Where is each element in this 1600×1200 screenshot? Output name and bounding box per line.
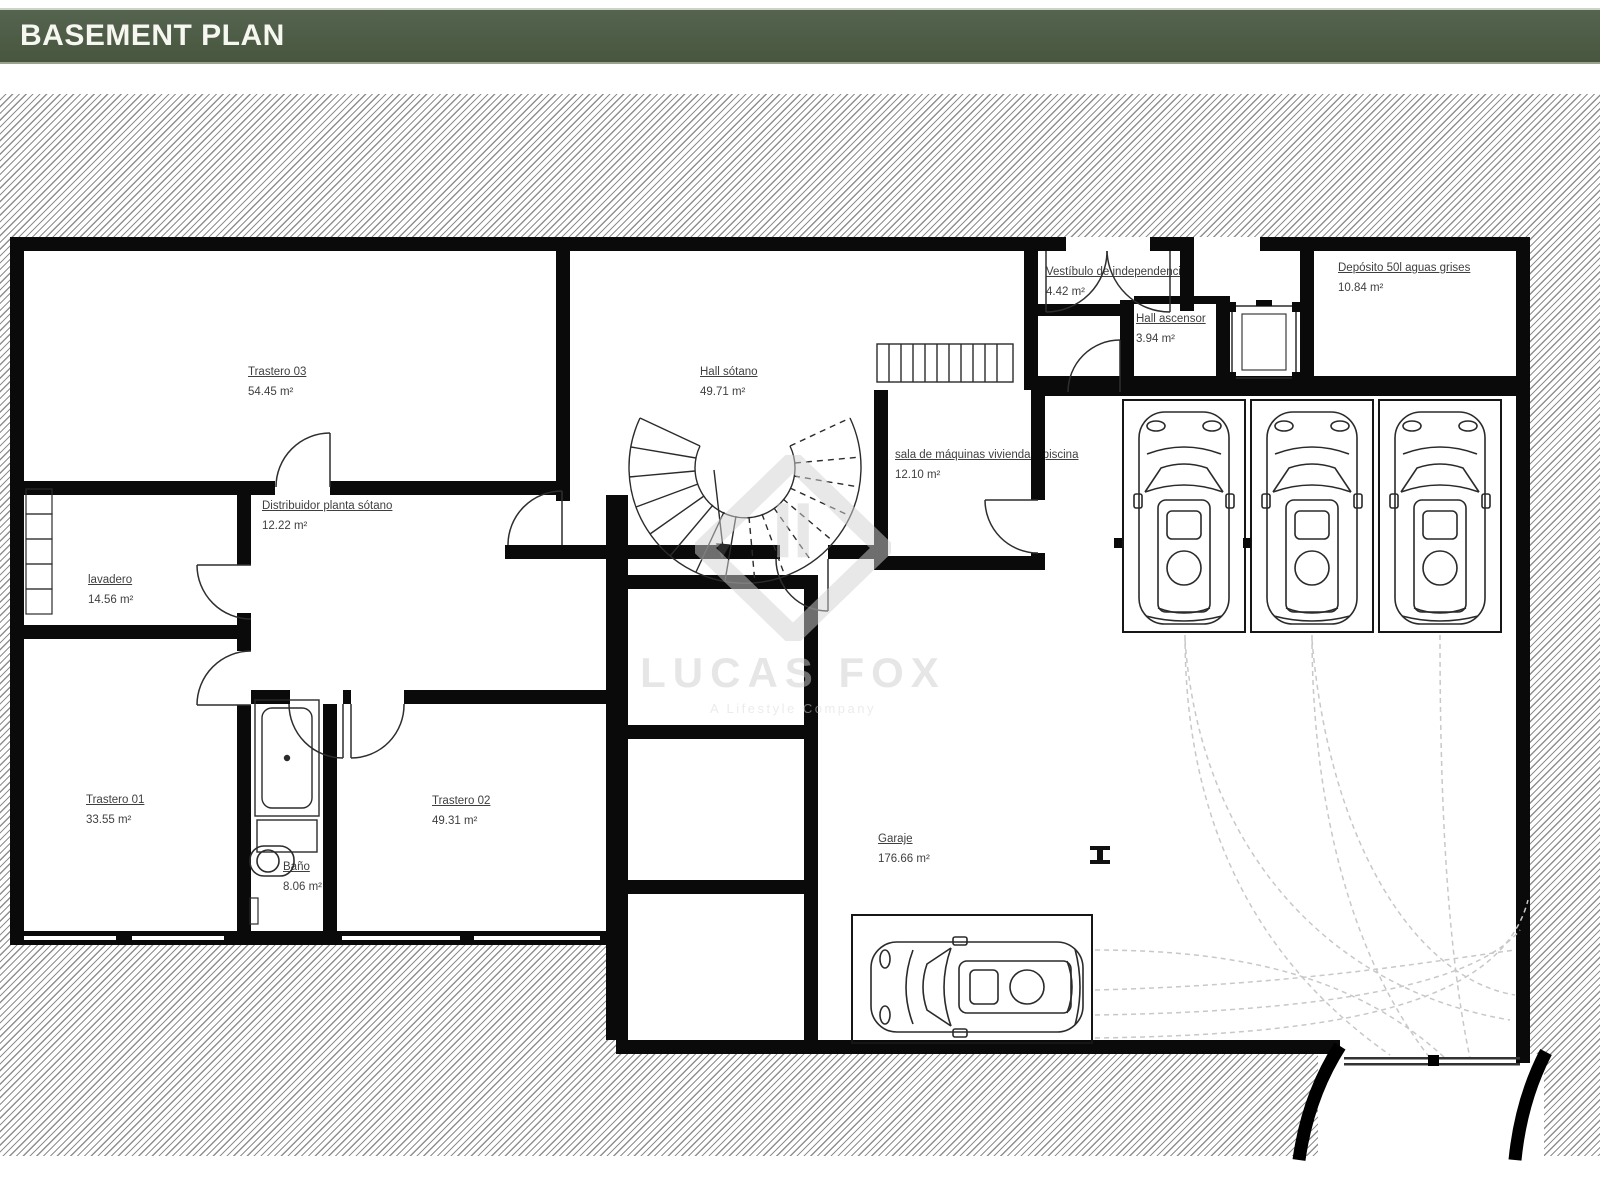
door-lavadero xyxy=(197,565,251,619)
shower xyxy=(255,700,319,852)
vehicle-path-dashes xyxy=(1095,635,1528,1058)
floorplan-linework xyxy=(0,0,1600,1200)
stair-direction-arrow xyxy=(714,470,723,548)
door-trastero-01 xyxy=(197,651,251,705)
car-top-view-icon xyxy=(871,937,1083,1037)
storage-shelf xyxy=(26,489,52,614)
walls xyxy=(10,237,1530,1063)
car-top-view-icon xyxy=(1262,412,1362,624)
basement-plan-page: BASEMENT PLAN Trastero 0354.45 m² Hall s… xyxy=(0,0,1600,1200)
door-trastero-02 xyxy=(351,704,404,758)
driveway-curb xyxy=(1299,1046,1546,1160)
car-top-view-icon xyxy=(1134,412,1234,624)
door-sala-maquinas xyxy=(985,500,1038,553)
ventilation-grille xyxy=(877,344,1013,382)
door-trastero-03 xyxy=(276,433,330,487)
door-hall-sotano xyxy=(508,491,562,545)
column-ibeam xyxy=(1090,846,1110,864)
elevator xyxy=(1228,300,1300,382)
toilet xyxy=(250,846,294,924)
car-top-view-icon xyxy=(1390,412,1490,624)
